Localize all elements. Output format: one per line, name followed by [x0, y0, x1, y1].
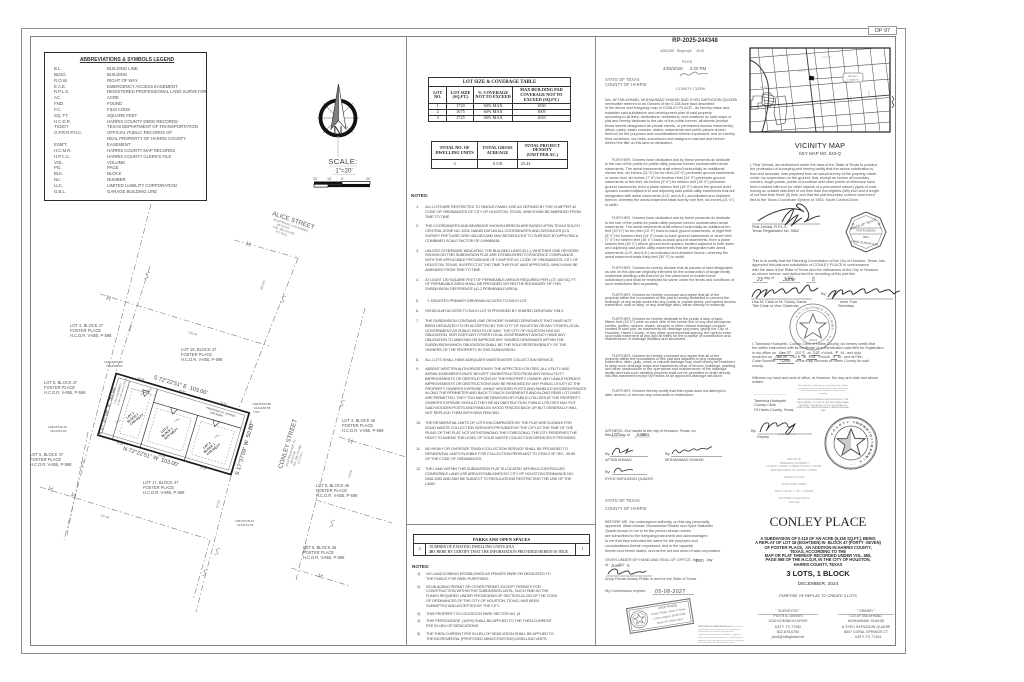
svg-text:50.00': 50.00' — [347, 469, 353, 478]
svg-text:H.C.D.R. V-655, P-598: H.C.D.R. V-655, P-598 — [30, 462, 72, 467]
svg-text:10': 10' — [327, 177, 332, 181]
svg-text:H.C.D.R. V-655, P-598: H.C.D.R. V-655, P-598 — [181, 357, 223, 362]
svg-text:20': 20' — [366, 177, 371, 181]
svg-text:3124075.09: 3124075.09 — [50, 429, 67, 433]
svg-text:0': 0' — [341, 177, 344, 181]
svg-text:H.C.D.R. V-655, P-598: H.C.D.R. V-655, P-598 — [342, 428, 384, 433]
svg-text:H.C.D.R. V-655, P-598: H.C.D.R. V-655, P-598 — [44, 390, 86, 395]
svg-text:7.5%': 7.5%' — [253, 410, 260, 414]
svg-text:1"=20': 1"=20' — [335, 168, 352, 175]
svg-text:H.C.D.R. V-655, P-598: H.C.D.R. V-655, P-598 — [143, 490, 185, 495]
svg-text:H.C.D.R. V-655, P-598: H.C.D.R. V-655, P-598 — [303, 555, 345, 560]
svg-text:150.00': 150.00' — [100, 513, 111, 520]
svg-text:105.00': 105.00' — [188, 330, 199, 337]
svg-text:3124172.25: 3124172.25 — [237, 523, 254, 527]
svg-text:SCALE:: SCALE: — [328, 157, 357, 166]
svg-text:H.C.D.R. V-655, P-598: H.C.D.R. V-655, P-598 — [316, 493, 358, 498]
svg-text:20': 20' — [313, 177, 318, 181]
svg-text:3124090.23: 3124090.23 — [106, 364, 123, 368]
svg-text:50.00': 50.00' — [127, 323, 133, 332]
svg-text:(60.00'): (60.00') — [259, 280, 266, 291]
svg-text:H.C.D.R. V-655, P-598: H.C.D.R. V-655, P-598 — [70, 333, 112, 338]
svg-text:50.00': 50.00' — [215, 499, 221, 508]
